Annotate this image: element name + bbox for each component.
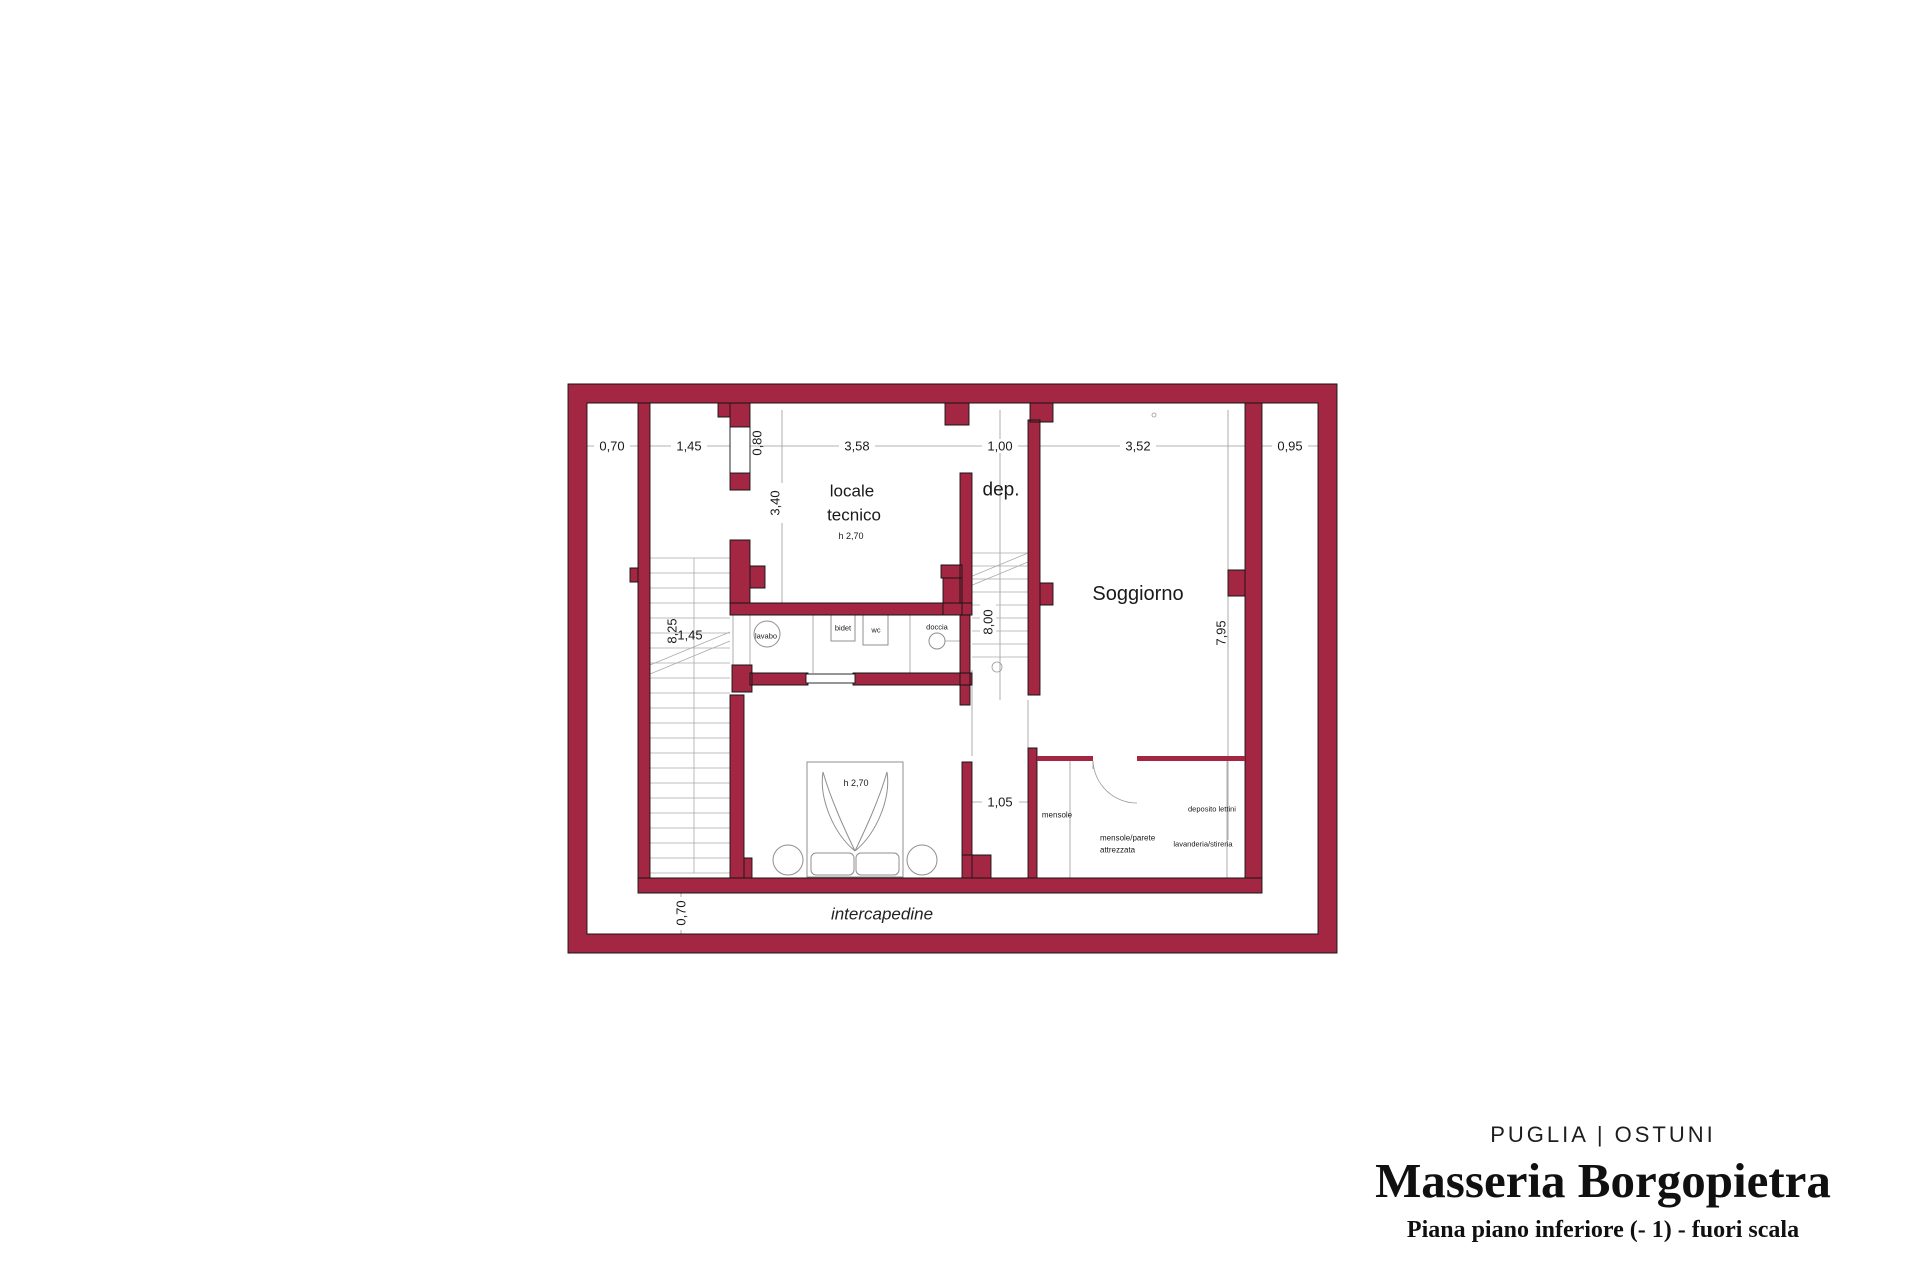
floorplan-drawing: 0,70 1,45 0,80 3,58 1,00 3,52 0,95 3,40 …	[560, 370, 1380, 980]
dim-top-080: 0,80	[750, 430, 765, 455]
construction-lines	[587, 410, 1318, 934]
stairs-dep	[970, 553, 1028, 657]
corridor-detail-circle	[992, 662, 1002, 672]
dim-right-795: 7,95	[1214, 620, 1229, 645]
dim-mid-800: 8,00	[981, 609, 996, 634]
pillow-right	[856, 853, 899, 875]
plan-subtitle: Piana piano inferiore (- 1) - fuori scal…	[1303, 1216, 1903, 1244]
walls-layer	[568, 384, 1337, 953]
dim-top-070: 0,70	[599, 439, 624, 454]
dim-bottom-105: 1,05	[987, 795, 1012, 810]
window-opening-080	[730, 427, 750, 473]
dim-top-358: 3,58	[844, 439, 869, 454]
label-wc: wc	[870, 626, 880, 635]
doccia-drain	[929, 633, 945, 649]
label-bedroom-height: h 2,70	[843, 778, 868, 788]
dim-top-352: 3,52	[1125, 439, 1150, 454]
location-label: PUGLIA | OSTUNI	[1303, 1122, 1903, 1148]
property-title: Masseria Borgopietra	[1303, 1154, 1903, 1208]
dim-top-095: 0,95	[1277, 439, 1302, 454]
storage-labels: mensole deposito lettini mensole/parete …	[1042, 805, 1236, 855]
room-label-soggiorno: Soggiorno	[1092, 583, 1183, 605]
nightstand-left	[773, 845, 803, 875]
nightstand-right	[907, 845, 937, 875]
label-deposito-lettini: deposito lettini	[1188, 805, 1236, 814]
label-intercapedine: intercapedine	[831, 905, 933, 924]
label-lavabo: lavabo	[755, 632, 777, 641]
label-doccia: doccia	[926, 623, 949, 632]
storage-room-thin-walls	[1037, 756, 1245, 761]
label-lavanderia: lavanderia/stireria	[1173, 840, 1233, 849]
room-label-dep: dep.	[983, 480, 1020, 501]
label-mensole-parete-2: attrezzata	[1100, 846, 1136, 855]
dim-left-340: 3,40	[768, 490, 783, 515]
stairs-main	[650, 558, 730, 873]
dim-top-145: 1,45	[676, 439, 701, 454]
label-bidet: bidet	[835, 624, 852, 633]
dim-bottom-070: 0,70	[674, 900, 689, 925]
outer-perimeter-wall	[568, 384, 1337, 953]
room-label-locale-tecnico-1: locale	[830, 482, 874, 501]
floorplan-page: 0,70 1,45 0,80 3,58 1,00 3,52 0,95 3,40 …	[0, 0, 1920, 1280]
room-label-locale-tecnico-2: tecnico	[827, 506, 881, 525]
door-arc	[1093, 761, 1137, 803]
label-mensole-parete-1: mensole/parete	[1100, 834, 1156, 843]
dim-stairs-145: 1,45	[677, 628, 702, 643]
sliding-door-panel	[806, 674, 855, 683]
pillow-left	[811, 853, 854, 875]
title-block: PUGLIA | OSTUNI Masseria Borgopietra Pia…	[1303, 1122, 1903, 1244]
stairs-dep-break-line	[970, 553, 1028, 586]
label-locale-tecnico-height: h 2,70	[838, 531, 863, 541]
soggiorno-detail-mark	[1152, 413, 1156, 417]
dim-top-100: 1,00	[987, 439, 1012, 454]
label-mensole: mensole	[1042, 811, 1073, 820]
